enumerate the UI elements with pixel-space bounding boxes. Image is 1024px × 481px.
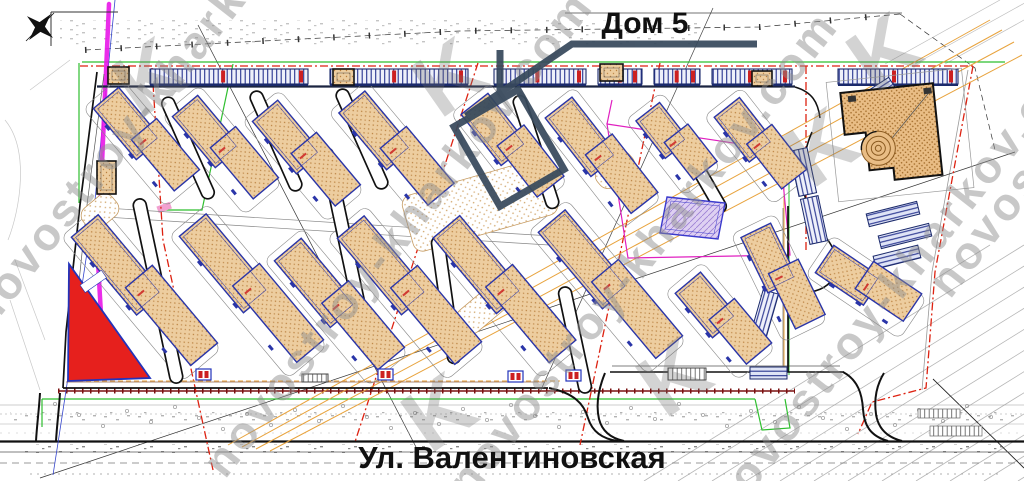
house-5-label: Дом 5 [602,7,689,40]
entrance-marker [196,369,211,380]
parking-row [654,69,700,86]
technical-building [600,64,623,81]
site-plan-drawing: novostroy-kharkov.com novostroy-kharkov.… [0,0,1024,481]
entrance-marker [378,369,393,380]
technical-building [333,69,354,85]
site-plan-canvas: novostroy-kharkov.com novostroy-kharkov.… [0,0,1024,481]
street-name-label: Ул. Валентиновская [358,440,665,475]
curb-parking-row [750,367,787,379]
